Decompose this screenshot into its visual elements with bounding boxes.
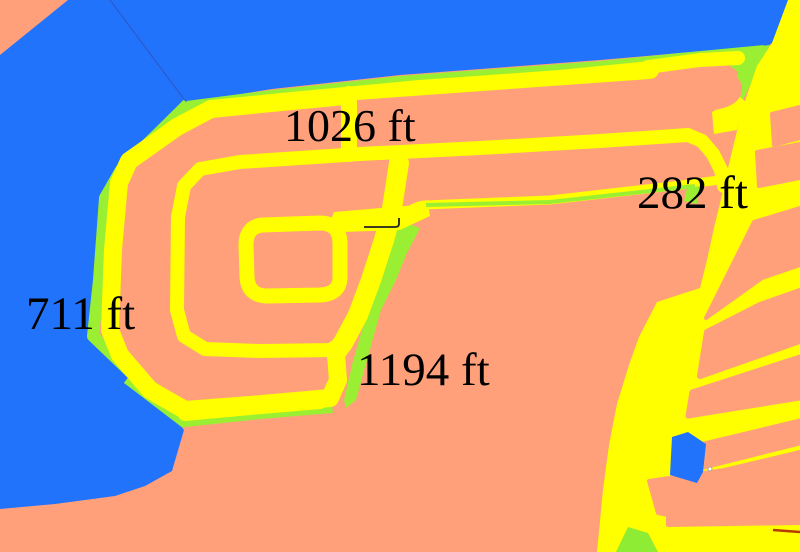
svg-text:1026 ft: 1026 ft bbox=[284, 100, 416, 151]
svg-text:711 ft: 711 ft bbox=[26, 288, 135, 340]
svg-text:282 ft: 282 ft bbox=[637, 167, 748, 219]
svg-text:1194 ft: 1194 ft bbox=[357, 344, 490, 396]
